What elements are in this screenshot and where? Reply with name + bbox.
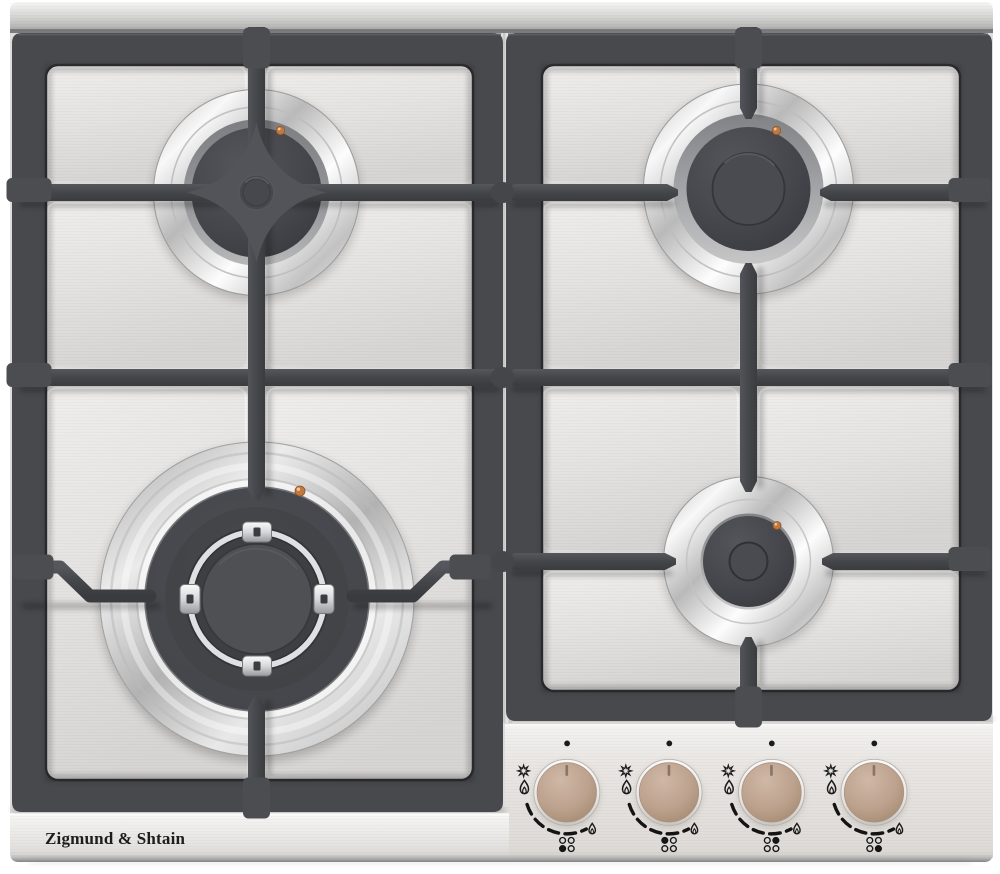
svg-text:Zigmund & Shtain: Zigmund & Shtain (45, 829, 186, 848)
